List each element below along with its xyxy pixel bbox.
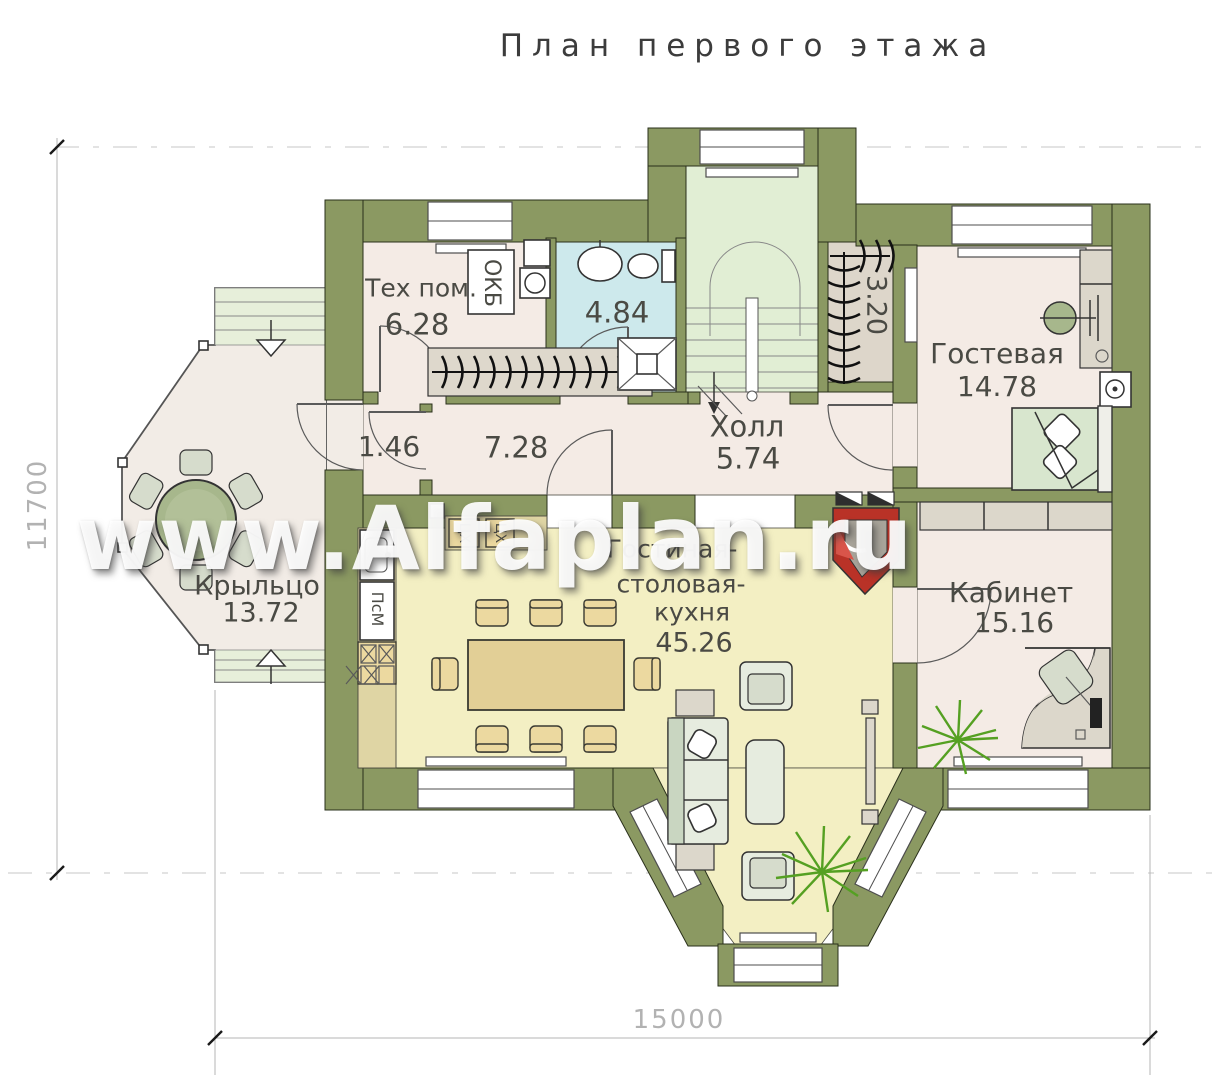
room-label-guest-area: 14.78 xyxy=(957,373,1037,401)
room-label-porch-area: 13.72 xyxy=(222,600,299,627)
room-label-living-line3: кухня xyxy=(654,600,730,625)
room-label-hall-name: Холл xyxy=(710,413,785,442)
room-label-corridor-area: 7.28 xyxy=(484,434,549,463)
floor-plan-page: План первого этажа Тех пом. 6.28 ОКБ 4.8… xyxy=(0,0,1214,1080)
page-title: План первого этажа xyxy=(500,28,997,64)
room-label-living-area: 45.26 xyxy=(655,630,732,657)
room-label-guest-name: Гостевая xyxy=(930,340,1064,368)
dimension-height: 11700 xyxy=(25,459,51,552)
room-label-tech-name: Тех пом. xyxy=(365,276,477,301)
room-label-tech-area: 6.28 xyxy=(385,311,450,340)
room-label-bathroom-area: 4.84 xyxy=(585,299,650,328)
room-label-office-name: Кабинет xyxy=(949,579,1073,607)
room-label-hall-area: 5.74 xyxy=(716,445,781,474)
room-label-entry-area: 1.46 xyxy=(358,433,420,461)
boiler-label: ОКБ xyxy=(480,259,502,307)
dishwasher-label: ПсМ xyxy=(369,592,385,627)
room-label-wardrobe-area: 3.20 xyxy=(863,275,890,335)
dimension-width: 15000 xyxy=(633,1007,726,1033)
room-label-office-area: 15.16 xyxy=(974,609,1054,637)
watermark: www.Alfaplan.ru xyxy=(76,487,913,590)
